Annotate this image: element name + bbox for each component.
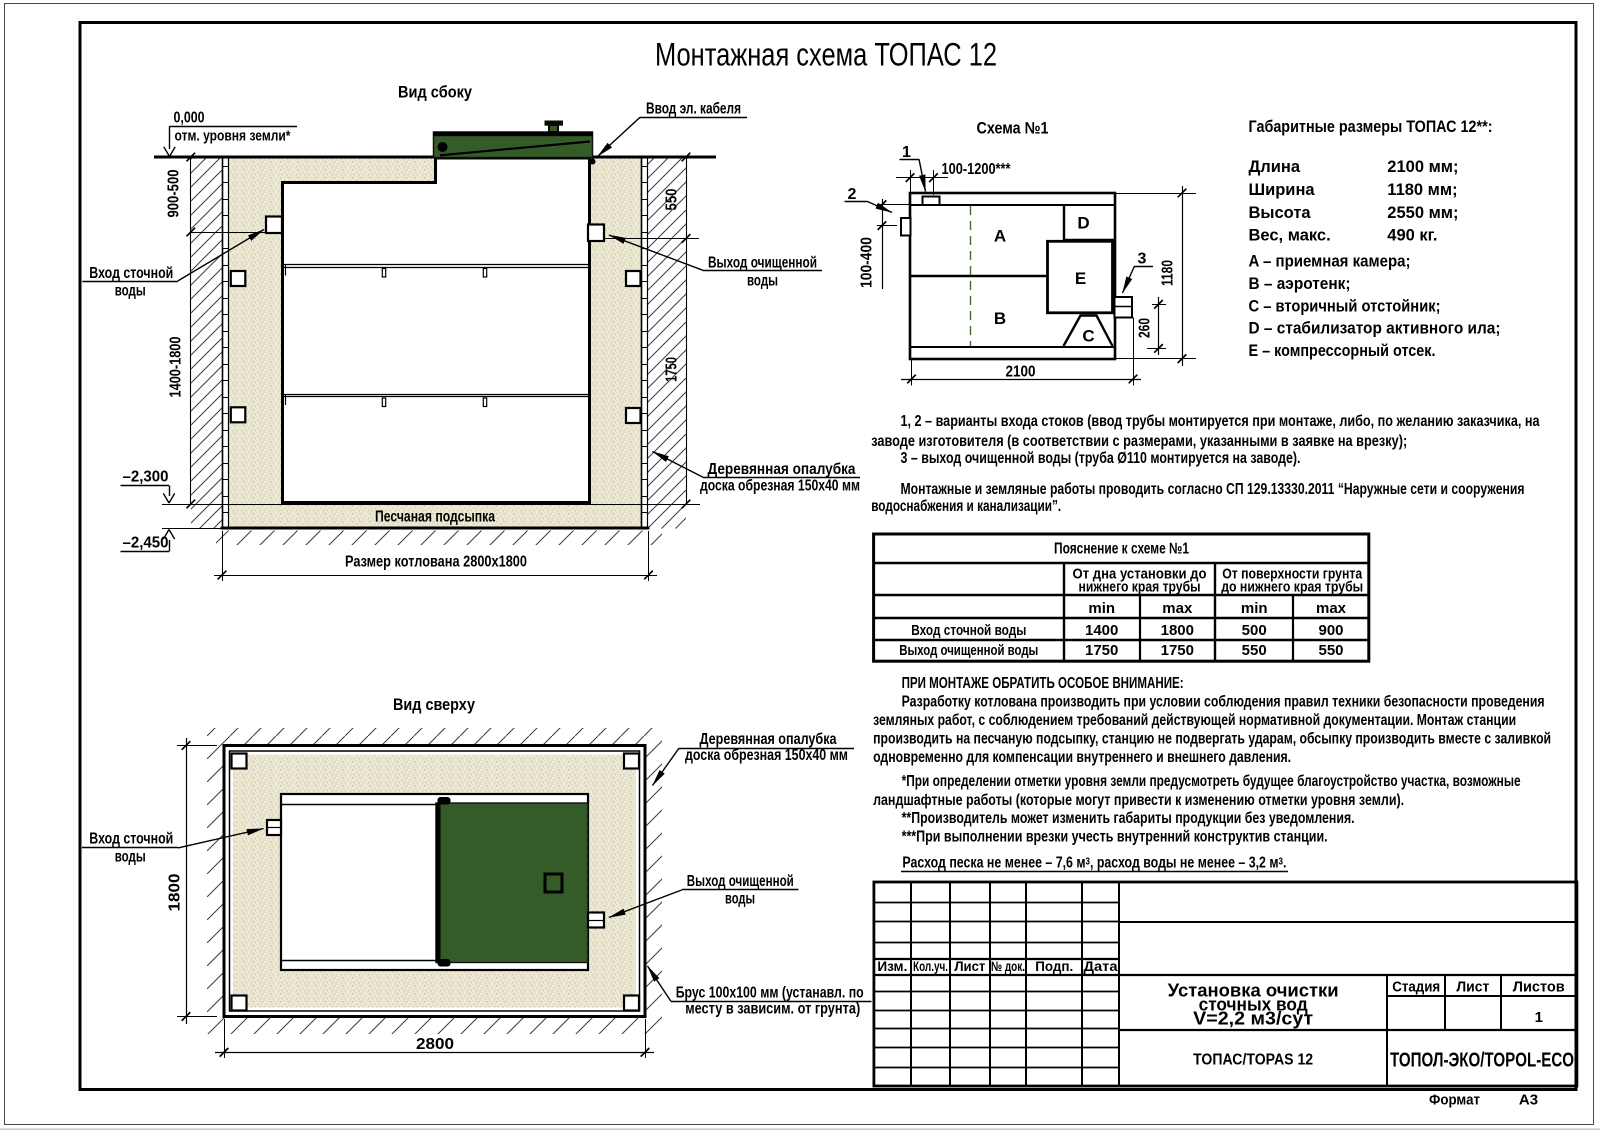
svg-text:Выход очищенной: Выход очищенной (687, 873, 794, 890)
svg-text:**Производитель может изменить: **Производитель может изменить габариты … (902, 810, 1355, 827)
svg-text:Выход очищенной воды: Выход очищенной воды (899, 642, 1038, 659)
svg-text:нижнего края трубы: нижнего края трубы (1079, 580, 1201, 596)
svg-text:1750: 1750 (1161, 642, 1194, 659)
svg-text:Вес, макс.: Вес, макс. (1249, 227, 1331, 245)
svg-text:Длина: Длина (1249, 158, 1301, 176)
svg-text:воды: воды (115, 282, 146, 299)
svg-text:водоснабжения и канализации”.: водоснабжения и канализации”. (871, 498, 1061, 515)
svg-text:1400-1800: 1400-1800 (168, 337, 185, 398)
svg-text:B – аэротенк;: B – аэротенк; (1249, 275, 1351, 293)
svg-text:E: E (1075, 269, 1086, 288)
svg-text:Ширина: Ширина (1249, 181, 1316, 199)
svg-text:Брус 100х100 мм (устанавл. по: Брус 100х100 мм (устанавл. по (676, 985, 864, 1002)
svg-text:Вход сточной: Вход сточной (89, 831, 173, 848)
svg-text:D – стабилизатор активного ила: D – стабилизатор активного ила; (1249, 320, 1501, 338)
svg-text:Выход очищенной: Выход очищенной (708, 255, 817, 272)
svg-text:Дата: Дата (1084, 959, 1119, 974)
svg-text:Листов: Листов (1513, 980, 1565, 996)
svg-text:D: D (1077, 214, 1089, 233)
svg-text:ТОПАС/TOPAS 12: ТОПАС/TOPAS 12 (1193, 1052, 1313, 1069)
svg-text:до нижнего края трубы: до нижнего края трубы (1221, 580, 1363, 596)
svg-text:–2,300: –2,300 (123, 469, 169, 486)
svg-text:ландшафтные работы (которые мо: ландшафтные работы (которые могут привес… (873, 792, 1404, 809)
svg-text:Вход сточной: Вход сточной (89, 265, 173, 282)
svg-text:Кол.уч.: Кол.уч. (913, 959, 948, 974)
svg-text:*При определении отметки уровн: *При определении отметки уровня земли пр… (902, 773, 1521, 790)
svg-text:воды: воды (115, 849, 146, 866)
svg-text:550: 550 (664, 189, 681, 211)
svg-text:1: 1 (1535, 1009, 1543, 1026)
svg-text:Формат: Формат (1429, 1092, 1480, 1109)
svg-text:Пояснение к схеме №1: Пояснение к схеме №1 (1054, 541, 1189, 558)
svg-text:Схема №1: Схема №1 (977, 120, 1049, 138)
svg-text:490 кг.: 490 кг. (1387, 227, 1437, 245)
svg-text:заводе изготовителя (в соответ: заводе изготовителя (в соответствии с ра… (871, 433, 1407, 450)
svg-text:отм. уровня земли*: отм. уровня земли* (175, 129, 291, 145)
svg-text:V=2,2 м3/сут: V=2,2 м3/сут (1193, 1009, 1313, 1029)
svg-text:2: 2 (848, 186, 857, 203)
svg-text:ТОПОЛ-ЭКО/TOPOL-ECO: ТОПОЛ-ЭКО/TOPOL-ECO (1390, 1050, 1574, 1072)
svg-text:900: 900 (1318, 622, 1343, 639)
svg-text:земляных работ, с соблюдением: земляных работ, с соблюдением требований… (873, 712, 1516, 729)
svg-text:0,000: 0,000 (174, 110, 205, 127)
svg-text:1750: 1750 (664, 357, 681, 382)
svg-text:1800: 1800 (1161, 622, 1194, 639)
svg-text:Высота: Высота (1249, 204, 1312, 222)
svg-text:1, 2 – варианты входа стоков: 1, 2 – варианты входа стоков (ввод трубы… (901, 413, 1540, 430)
svg-text:Вход сточной воды: Вход сточной воды (911, 622, 1026, 639)
svg-text:C: C (1082, 327, 1094, 346)
svg-text:Лист: Лист (954, 959, 985, 974)
svg-text:воды: воды (725, 891, 755, 908)
svg-text:***При выполнении врезки учест: ***При выполнении врезки учесть внутренн… (902, 829, 1328, 846)
svg-text:1750: 1750 (1085, 642, 1118, 659)
svg-text:260: 260 (1137, 318, 1154, 338)
svg-text:№ док.: № док. (991, 959, 1025, 974)
svg-text:B: B (994, 309, 1006, 328)
svg-text:Размер котлована 2800х1800: Размер котлована 2800х1800 (345, 554, 527, 571)
svg-text:A: A (994, 227, 1006, 246)
svg-text:Стадия: Стадия (1392, 980, 1440, 996)
svg-text:–2,450: –2,450 (123, 535, 169, 552)
svg-text:E – компрессорный отсек.: E – компрессорный отсек. (1249, 342, 1436, 360)
svg-text:Лист: Лист (1456, 980, 1489, 996)
svg-text:Монтажная схема ТОПАС 12: Монтажная схема ТОПАС 12 (655, 37, 997, 73)
svg-text:Песчаная подсыпка: Песчаная подсыпка (375, 509, 495, 526)
svg-text:Изм.: Изм. (877, 959, 907, 974)
svg-text:550: 550 (1242, 642, 1267, 659)
svg-text:min: min (1241, 600, 1268, 617)
svg-text:1180: 1180 (1160, 260, 1177, 286)
svg-text:Монтажные и земляные работы пр: Монтажные и земляные работы проводить со… (901, 481, 1525, 498)
svg-text:2550 мм;: 2550 мм; (1387, 204, 1458, 222)
svg-text:500: 500 (1242, 622, 1267, 639)
svg-text:A – приемная камера;: A – приемная камера; (1249, 253, 1411, 271)
svg-text:доска обрезная 150х40 мм: доска обрезная 150х40 мм (700, 478, 860, 495)
svg-text:1800: 1800 (167, 874, 184, 912)
svg-text:550: 550 (1318, 642, 1343, 659)
svg-text:Вид сверху: Вид сверху (393, 695, 475, 714)
svg-text:воды: воды (747, 273, 778, 290)
svg-text:1400: 1400 (1085, 622, 1118, 639)
svg-text:2100: 2100 (1006, 364, 1036, 381)
svg-text:1: 1 (902, 144, 911, 161)
svg-text:доска обрезная 150х40 мм: доска обрезная 150х40 мм (685, 747, 848, 764)
svg-text:max: max (1316, 600, 1347, 617)
svg-text:100-1200***: 100-1200*** (942, 161, 1012, 178)
svg-text:Ввод эл. кабеля: Ввод эл. кабеля (646, 101, 741, 118)
svg-text:Деревянная опалубка: Деревянная опалубка (700, 731, 837, 748)
svg-text:месту в зависим. от грунта): месту в зависим. от грунта) (685, 1001, 860, 1018)
svg-text:3: 3 (1138, 251, 1147, 268)
svg-text:2800: 2800 (416, 1036, 454, 1053)
svg-text:Расход песка не менее – 7,6 м3: Расход песка не менее – 7,6 м3, расход в… (902, 855, 1286, 872)
svg-text:C – вторичный отстойник;: C – вторичный отстойник; (1249, 297, 1441, 315)
svg-text:min: min (1088, 600, 1115, 617)
svg-text:одновременно для компенсации в: одновременно для компенсации внутреннего… (873, 749, 1291, 766)
svg-text:2100 мм;: 2100 мм; (1387, 158, 1458, 176)
svg-text:Разработку котлована производи: Разработку котлована производить при усл… (902, 694, 1545, 711)
svg-text:Габаритные размеры ТОПАС 12**:: Габаритные размеры ТОПАС 12**: (1249, 118, 1493, 136)
svg-text:Деревянная опалубка: Деревянная опалубка (708, 461, 856, 478)
svg-text:max: max (1162, 600, 1193, 617)
svg-text:А3: А3 (1519, 1092, 1538, 1109)
svg-text:производить на песчаную подсып: производить на песчаную подсыпку, станци… (873, 730, 1551, 747)
svg-text:3 – выход очищенной воды (труб: 3 – выход очищенной воды (труба Ø110 мон… (901, 450, 1301, 467)
svg-text:Вид сбоку: Вид сбоку (398, 83, 472, 102)
svg-text:100-400: 100-400 (859, 237, 876, 288)
svg-text:1180 мм;: 1180 мм; (1387, 181, 1457, 199)
svg-text:ПРИ МОНТАЖЕ ОБРАТИТЬ ОСОБОЕ ВН: ПРИ МОНТАЖЕ ОБРАТИТЬ ОСОБОЕ ВНИМАНИЕ: (902, 675, 1184, 692)
svg-text:Подп.: Подп. (1035, 959, 1073, 974)
svg-text:900-500: 900-500 (166, 170, 183, 218)
